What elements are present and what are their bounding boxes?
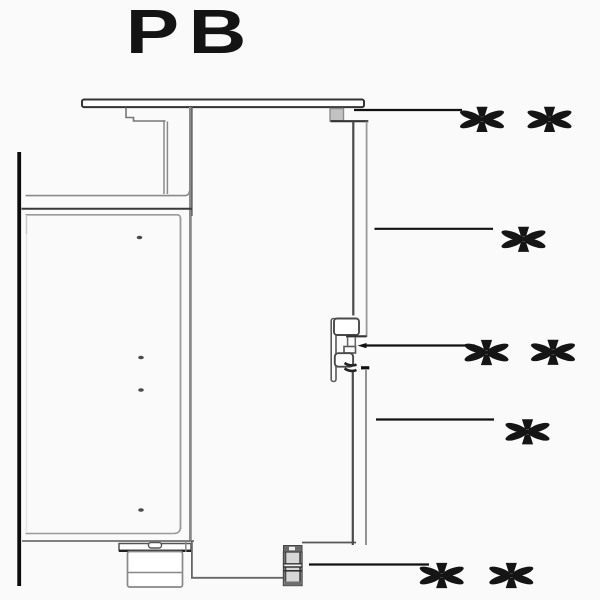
svg-text:PB: PB: [126, 0, 256, 67]
